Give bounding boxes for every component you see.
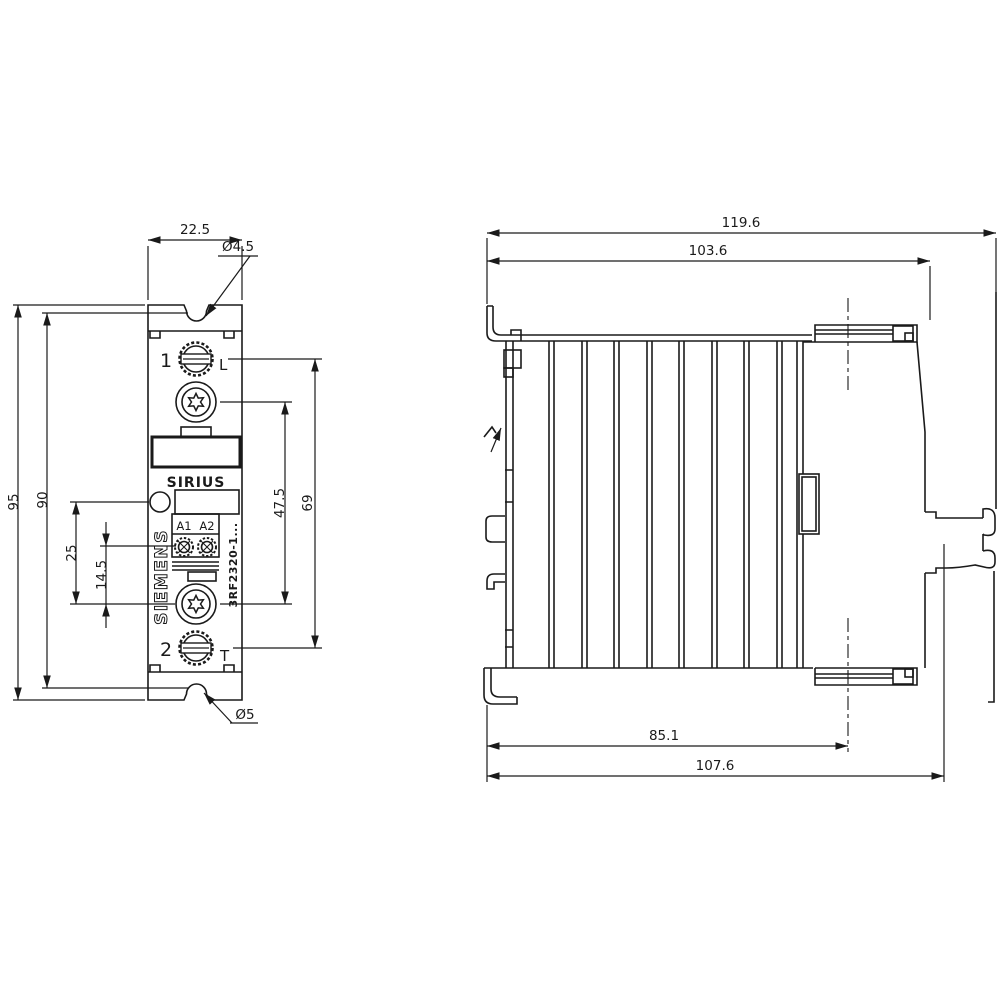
front-window-box — [175, 490, 239, 514]
label-terminal-2: 2 — [160, 639, 172, 661]
front-dim-hole-distance: 90 — [35, 491, 51, 508]
side-dim-body-depth: 103.6 — [689, 243, 728, 259]
side-tab-hook-top — [983, 509, 995, 551]
front-top-flange — [148, 305, 242, 331]
side-back-plate — [506, 341, 513, 668]
front-top-tab-left — [150, 331, 160, 338]
label-siemens: SIEMENS — [152, 529, 172, 625]
label-sirius: SIRIUS — [167, 475, 226, 491]
label-terminal-1: 1 — [160, 350, 172, 372]
front-dim-bottom-hole: Ø5 — [235, 707, 254, 723]
side-dim-overall-depth: 119.6 — [722, 215, 761, 231]
front-view: 1 L SIRIUS SIEMENS A1 A2 3RF2320-1... 2 … — [148, 305, 242, 700]
side-tab-top-edge — [925, 512, 983, 518]
side-view — [484, 292, 996, 752]
label-terminal-t: T — [219, 647, 230, 665]
side-spring-hook — [484, 427, 496, 437]
side-din-hook-top — [487, 306, 501, 341]
side-din-foot-bottom — [484, 668, 517, 704]
side-front-flap-lower — [988, 571, 994, 702]
label-a1: A1 — [176, 519, 191, 533]
front-bottom-flange — [148, 672, 242, 700]
front-dim-screw-distance: 47.5 — [272, 488, 288, 518]
side-clip-hook-low — [487, 574, 505, 589]
front-bottom-tab-left — [150, 665, 160, 672]
coil-screw-a2 — [198, 538, 216, 556]
side-terminal-block-bottom — [815, 668, 917, 685]
side-dim-screw-axis-depth: 85.1 — [649, 728, 679, 744]
label-terminal-l: L — [219, 356, 228, 374]
label-a2: A2 — [199, 519, 214, 533]
led-indicator — [150, 492, 170, 512]
torx-screw-top — [176, 382, 216, 422]
front-dim-width: 22.5 — [180, 222, 210, 238]
front-dim-led-offset: 25 — [64, 544, 80, 561]
front-dim-coil-offset: 14.5 — [94, 560, 110, 590]
side-tab-hook-bottom — [925, 550, 995, 573]
label-plate — [152, 437, 240, 467]
side-release-tab — [486, 516, 505, 542]
side-dim-front-depth: 107.6 — [696, 758, 735, 774]
front-dim-top-hole: Ø4.5 — [222, 239, 254, 255]
vent-slots — [172, 562, 219, 570]
side-view-dimensions: 119.6 103.6 85.1 107.6 — [487, 215, 996, 782]
front-bottom-tab-right — [224, 665, 234, 672]
coil-screw-a1 — [175, 538, 193, 556]
torx-screw-bottom — [176, 584, 216, 624]
label-order-number: 3RF2320-1... — [227, 522, 240, 607]
terminal-screw-2 — [180, 632, 213, 665]
side-body-right-edge-top — [917, 342, 925, 512]
vent-tab — [188, 572, 216, 581]
dimension-drawing-page: 1 L SIRIUS SIEMENS A1 A2 3RF2320-1... 2 … — [0, 0, 1000, 1000]
front-top-tab-right — [224, 331, 234, 338]
front-dim-terminal-distance: 69 — [300, 494, 316, 511]
side-heatsink-fins — [549, 341, 803, 668]
terminal-screw-1 — [180, 343, 213, 376]
front-dim-height: 95 — [6, 493, 22, 510]
dimension-drawing: 1 L SIRIUS SIEMENS A1 A2 3RF2320-1... 2 … — [0, 0, 1000, 1000]
